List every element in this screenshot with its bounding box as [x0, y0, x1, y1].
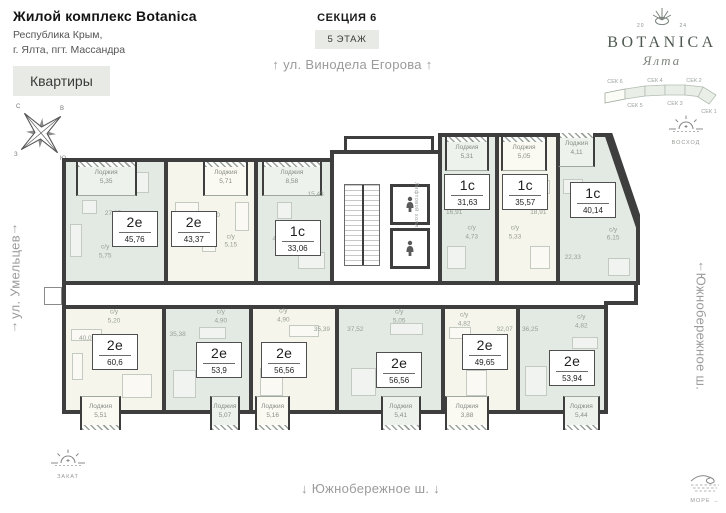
- apartment-2е-53,94[interactable]: Лоджия5,4436,25с/у4,822е53,94: [516, 305, 608, 414]
- apartment-type: 1с: [577, 185, 609, 201]
- room-area-annotation: с/у4,73: [465, 225, 478, 242]
- apartment-type-label: 2е45,76: [112, 211, 158, 247]
- apartment-type-label: 2е60,6: [92, 334, 138, 370]
- exterior-balcony: [44, 287, 62, 305]
- room-area-annotation: 36,25: [522, 326, 538, 334]
- apartment-type-label: 1с33,06: [275, 220, 321, 256]
- apartment-2е-49,65[interactable]: Лоджия3,8832,07с/у4,822е49,65: [441, 305, 520, 414]
- apartment-type: 2е: [178, 214, 210, 230]
- corridor-wall: [62, 285, 66, 305]
- apartment-type: 2е: [383, 355, 415, 371]
- room-area-annotation: с/у5,20: [108, 309, 121, 326]
- elevator-person-icon: [404, 240, 416, 257]
- loggia-label: Лоджия: [257, 403, 287, 412]
- apartment-type-label: 2е56,56: [376, 352, 422, 388]
- room-area-annotation: 35,39: [314, 326, 330, 334]
- room-area-annotation: 18,91: [530, 209, 546, 217]
- apartment-type-label: 2е43,37: [171, 211, 217, 247]
- furniture: [173, 370, 197, 398]
- loggia-area: 5,41: [383, 412, 419, 421]
- apartment-type-label: 2е49,65: [462, 334, 508, 370]
- apartment-1с-31,63[interactable]: Лоджия5,3116,91с/у4,731с31,63: [438, 133, 499, 285]
- loggia: Лоджия5,71: [203, 162, 248, 196]
- furniture: [72, 353, 84, 379]
- loggia-area: 5,16: [257, 412, 287, 421]
- loggia-label: Лоджия: [82, 403, 118, 412]
- elevator: [390, 228, 430, 269]
- room-area-annotation: с/у4,82: [458, 312, 471, 329]
- loggia-area: 5,31: [447, 153, 486, 162]
- loggia: Лоджия4,11: [558, 133, 596, 167]
- furniture: [82, 200, 98, 214]
- apartment-area: 33,06: [282, 241, 314, 253]
- apartment-type: 2е: [203, 345, 235, 361]
- room-area-annotation: 35,38: [169, 331, 185, 339]
- loggia: Лоджия5,07: [210, 396, 240, 430]
- furniture: [70, 224, 82, 257]
- apartment-2е-53,9[interactable]: Лоджия5,0735,38с/у4,902е53,9: [162, 305, 253, 414]
- apartment-type-label: 2е53,94: [549, 350, 595, 386]
- apartment-type-label: 1с35,57: [502, 174, 548, 210]
- room-area-annotation: 15,43: [307, 191, 323, 199]
- loggia: Лоджия5,44: [563, 396, 600, 430]
- apartment-type: 1с: [451, 177, 483, 193]
- furniture: [525, 366, 547, 396]
- furniture: [199, 327, 226, 339]
- apartment-area: 53,94: [556, 371, 588, 383]
- loggia-area: 5,51: [82, 412, 118, 421]
- room-area-annotation: 37,52: [347, 326, 363, 334]
- apartment-type: 2е: [556, 353, 588, 369]
- loggia-area: 5,35: [78, 178, 135, 187]
- apartment-type: 2е: [119, 214, 151, 230]
- apartment-area: 43,37: [178, 232, 210, 244]
- room-area-annotation: 16,91: [446, 209, 462, 217]
- furniture: [351, 368, 375, 396]
- corridor: [62, 285, 640, 305]
- stair-elevator-core: Лифтовой холл: [330, 150, 442, 285]
- room-area-annotation: 22,33: [565, 253, 581, 261]
- furniture: [572, 337, 598, 349]
- apartment-type-label: 1с31,63: [444, 174, 490, 210]
- apartment-area: 56,56: [268, 363, 300, 375]
- furniture: [530, 246, 550, 268]
- loggia-label: Лоджия: [205, 169, 246, 178]
- room-area-annotation: с/у6,15: [607, 226, 620, 243]
- apartment-1с-40,14[interactable]: Лоджия4,1122,33с/у6,151с40,14: [556, 133, 640, 285]
- loggia-label: Лоджия: [78, 169, 135, 178]
- room-area-annotation: 32,07: [496, 326, 512, 334]
- apartment-area: 35,57: [509, 195, 541, 207]
- loggia-area: 3,88: [447, 412, 487, 421]
- loggia-area: 5,05: [503, 153, 545, 162]
- furniture: [235, 202, 249, 230]
- elevator-hall-label: Лифтовой холл: [413, 182, 419, 228]
- loggia-label: Лоджия: [560, 140, 594, 149]
- loggia-area: 8,58: [264, 178, 320, 187]
- loggia: Лоджия3,88: [445, 396, 489, 430]
- loggia-label: Лоджия: [503, 144, 545, 153]
- room-area-annotation: с/у5,33: [509, 225, 522, 242]
- apartment-type-label: 1с40,14: [570, 182, 616, 218]
- apartment-type: 2е: [268, 345, 300, 361]
- loggia: Лоджия5,51: [80, 396, 120, 430]
- loggia: Лоджия5,35: [76, 162, 137, 196]
- corridor-wall: [604, 301, 638, 305]
- loggia-label: Лоджия: [212, 403, 238, 412]
- apartment-2е-43,37[interactable]: Лоджия5,7124,50с/у5,152е43,37: [164, 158, 258, 285]
- apartment-1с-33,06[interactable]: Лоджия8,5815,43с/у4,731с33,06: [254, 158, 334, 285]
- loggia: Лоджия5,16: [255, 396, 289, 430]
- loggia-area: 5,44: [565, 412, 598, 421]
- apartment-area: 60,6: [99, 355, 131, 367]
- room-area-annotation: с/у4,82: [575, 314, 588, 331]
- loggia: Лоджия5,41: [381, 396, 421, 430]
- furniture: [466, 370, 486, 396]
- loggia-label: Лоджия: [447, 144, 486, 153]
- apartment-1с-35,57[interactable]: Лоджия5,0518,91с/у5,331с35,57: [495, 133, 560, 285]
- apartment-type: 2е: [99, 337, 131, 353]
- apartment-area: 56,56: [383, 373, 415, 385]
- elevator: [390, 184, 430, 225]
- loggia-label: Лоджия: [447, 403, 487, 412]
- furniture: [122, 374, 153, 398]
- room-area-annotation: с/у5,15: [224, 233, 237, 250]
- furniture: [277, 202, 292, 218]
- loggia-label: Лоджия: [383, 403, 419, 412]
- apartment-area: 31,63: [451, 195, 483, 207]
- loggia-label: Лоджия: [264, 169, 320, 178]
- furniture: [447, 246, 466, 268]
- loggia: Лоджия5,05: [501, 137, 547, 171]
- apartment-type-label: 2е53,9: [196, 342, 242, 378]
- apartment-type: 2е: [469, 337, 501, 353]
- apartment-2е-56,56[interactable]: Лоджия5,1635,39с/у4,902е56,56: [249, 305, 339, 414]
- apartment-2е-60,6[interactable]: Лоджия5,5140,07с/у5,202е60,6: [62, 305, 166, 414]
- room-area-annotation: с/у4,90: [277, 308, 290, 325]
- loggia-label: Лоджия: [565, 403, 598, 412]
- apartment-type: 1с: [509, 177, 541, 193]
- loggia-area: 5,71: [205, 178, 246, 187]
- apartment-area: 49,65: [469, 355, 501, 367]
- room-area-annotation: с/у4,90: [214, 309, 227, 326]
- apartment-type: 1с: [282, 223, 314, 239]
- floor-plan: Лифтовой холл Лоджия5,3527,85с/у5,752е45…: [0, 0, 726, 513]
- room-area-annotation: с/у5,75: [99, 244, 112, 261]
- apartment-2е-56,56[interactable]: Лоджия5,4137,52с/у5,052е56,56: [335, 305, 445, 414]
- staircase: [344, 184, 380, 266]
- loggia: Лоджия5,31: [445, 137, 488, 171]
- loggia-area: 5,07: [212, 412, 238, 421]
- apartment-area: 53,9: [203, 363, 235, 375]
- apartment-type-label: 2е56,56: [261, 342, 307, 378]
- loggia-area: 4,11: [560, 149, 594, 158]
- apartment-area: 40,14: [577, 203, 609, 215]
- room-area-annotation: с/у5,05: [393, 309, 406, 326]
- apartment-2е-45,76[interactable]: Лоджия5,3527,85с/у5,752е45,76: [62, 158, 168, 285]
- apartment-area: 45,76: [119, 232, 151, 244]
- furniture: [608, 258, 630, 277]
